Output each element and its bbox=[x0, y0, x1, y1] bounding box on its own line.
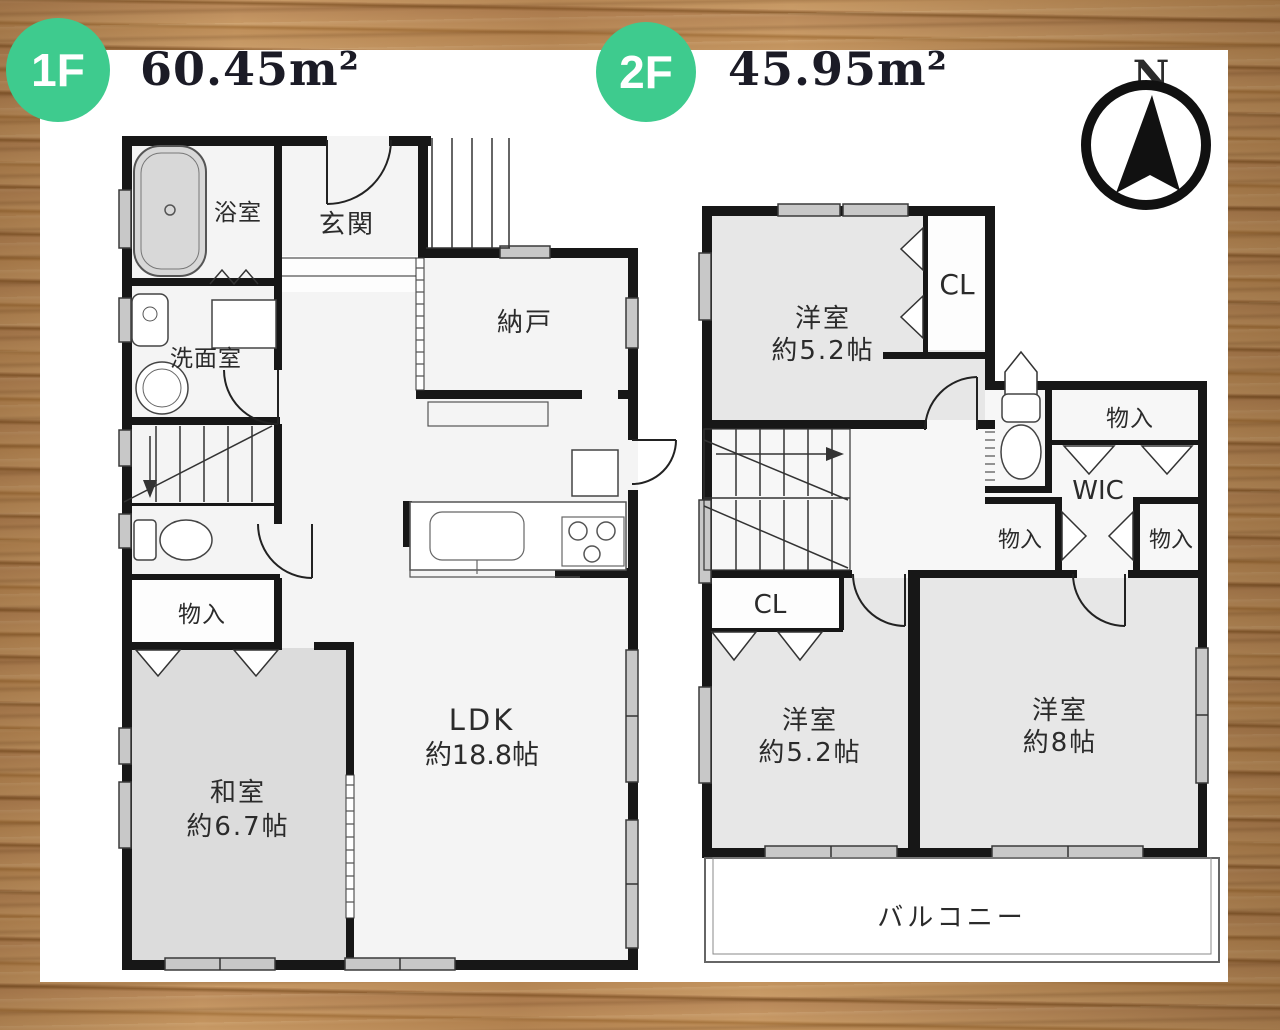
bedroom-southwest-size: 約5.2帖 bbox=[758, 738, 861, 768]
compass-icon: N bbox=[1072, 45, 1232, 215]
entrance-label: 玄関 bbox=[319, 210, 375, 240]
storage-right-label: 物入 bbox=[1149, 528, 1193, 553]
floor1-area-label: 60.45m² bbox=[140, 42, 360, 96]
bedroom-southeast-size: 約8帖 bbox=[1023, 728, 1098, 758]
storage-top-label: 物入 bbox=[1106, 406, 1154, 432]
bedroom-southeast-label: 洋室 bbox=[1032, 696, 1088, 726]
wic-label: WIC bbox=[1072, 476, 1124, 506]
refrigerator-space bbox=[572, 450, 618, 496]
bedroom-north-size: 約5.2帖 bbox=[771, 336, 874, 366]
floor2-fixtures bbox=[1001, 394, 1041, 479]
storage-left-label: 物入 bbox=[998, 528, 1042, 553]
bathroom-label: 浴室 bbox=[214, 200, 262, 226]
bedroom-north-label: 洋室 bbox=[795, 304, 851, 334]
toilet-bowl-icon bbox=[160, 520, 212, 560]
floor2-badge-label: 2F bbox=[619, 45, 673, 99]
japanese-room-size: 約6.7帖 bbox=[186, 812, 289, 842]
floor1-badge-label: 1F bbox=[31, 43, 85, 97]
ldk-label: LDK bbox=[449, 703, 516, 737]
washbasin-icon bbox=[132, 294, 168, 346]
floor2-badge: 2F bbox=[596, 22, 696, 122]
bedroom-southwest-label: 洋室 bbox=[782, 706, 838, 736]
back-door-arc bbox=[632, 440, 676, 484]
vanity-cabinet bbox=[212, 300, 276, 348]
toilet-tank-icon bbox=[1002, 394, 1040, 422]
washroom-label: 洗面室 bbox=[170, 346, 242, 372]
compass-arrow bbox=[1116, 95, 1180, 193]
floor1-badge: 1F bbox=[6, 18, 110, 122]
bathtub-icon bbox=[134, 146, 206, 276]
toilet-bowl-icon bbox=[1001, 425, 1041, 479]
floor1-plan: 浴室 洗面室 玄関 納戸 物入 和室 約6.7帖 LDK 約18.8帖 bbox=[110, 130, 690, 980]
closet-north-label: CL bbox=[939, 268, 975, 301]
storage-room-label: 納戸 bbox=[497, 308, 553, 338]
floor2-plan: 洋室 約5.2帖 CL 物入 WIC 物入 物入 CL 洋室 約5.2帖 洋室 … bbox=[690, 200, 1235, 990]
japanese-room-label: 和室 bbox=[210, 778, 266, 808]
closet-label: 物入 bbox=[178, 602, 226, 628]
ldk-size: 約18.8帖 bbox=[425, 740, 539, 771]
toilet-door-mark bbox=[1005, 352, 1037, 397]
balcony-label: バルコニー bbox=[877, 903, 1026, 933]
toilet-tank-icon bbox=[134, 520, 156, 560]
floor2-area-label: 45.95m² bbox=[728, 42, 948, 96]
kitchen-sink-icon bbox=[430, 512, 524, 560]
closet-south-label: CL bbox=[754, 590, 787, 620]
